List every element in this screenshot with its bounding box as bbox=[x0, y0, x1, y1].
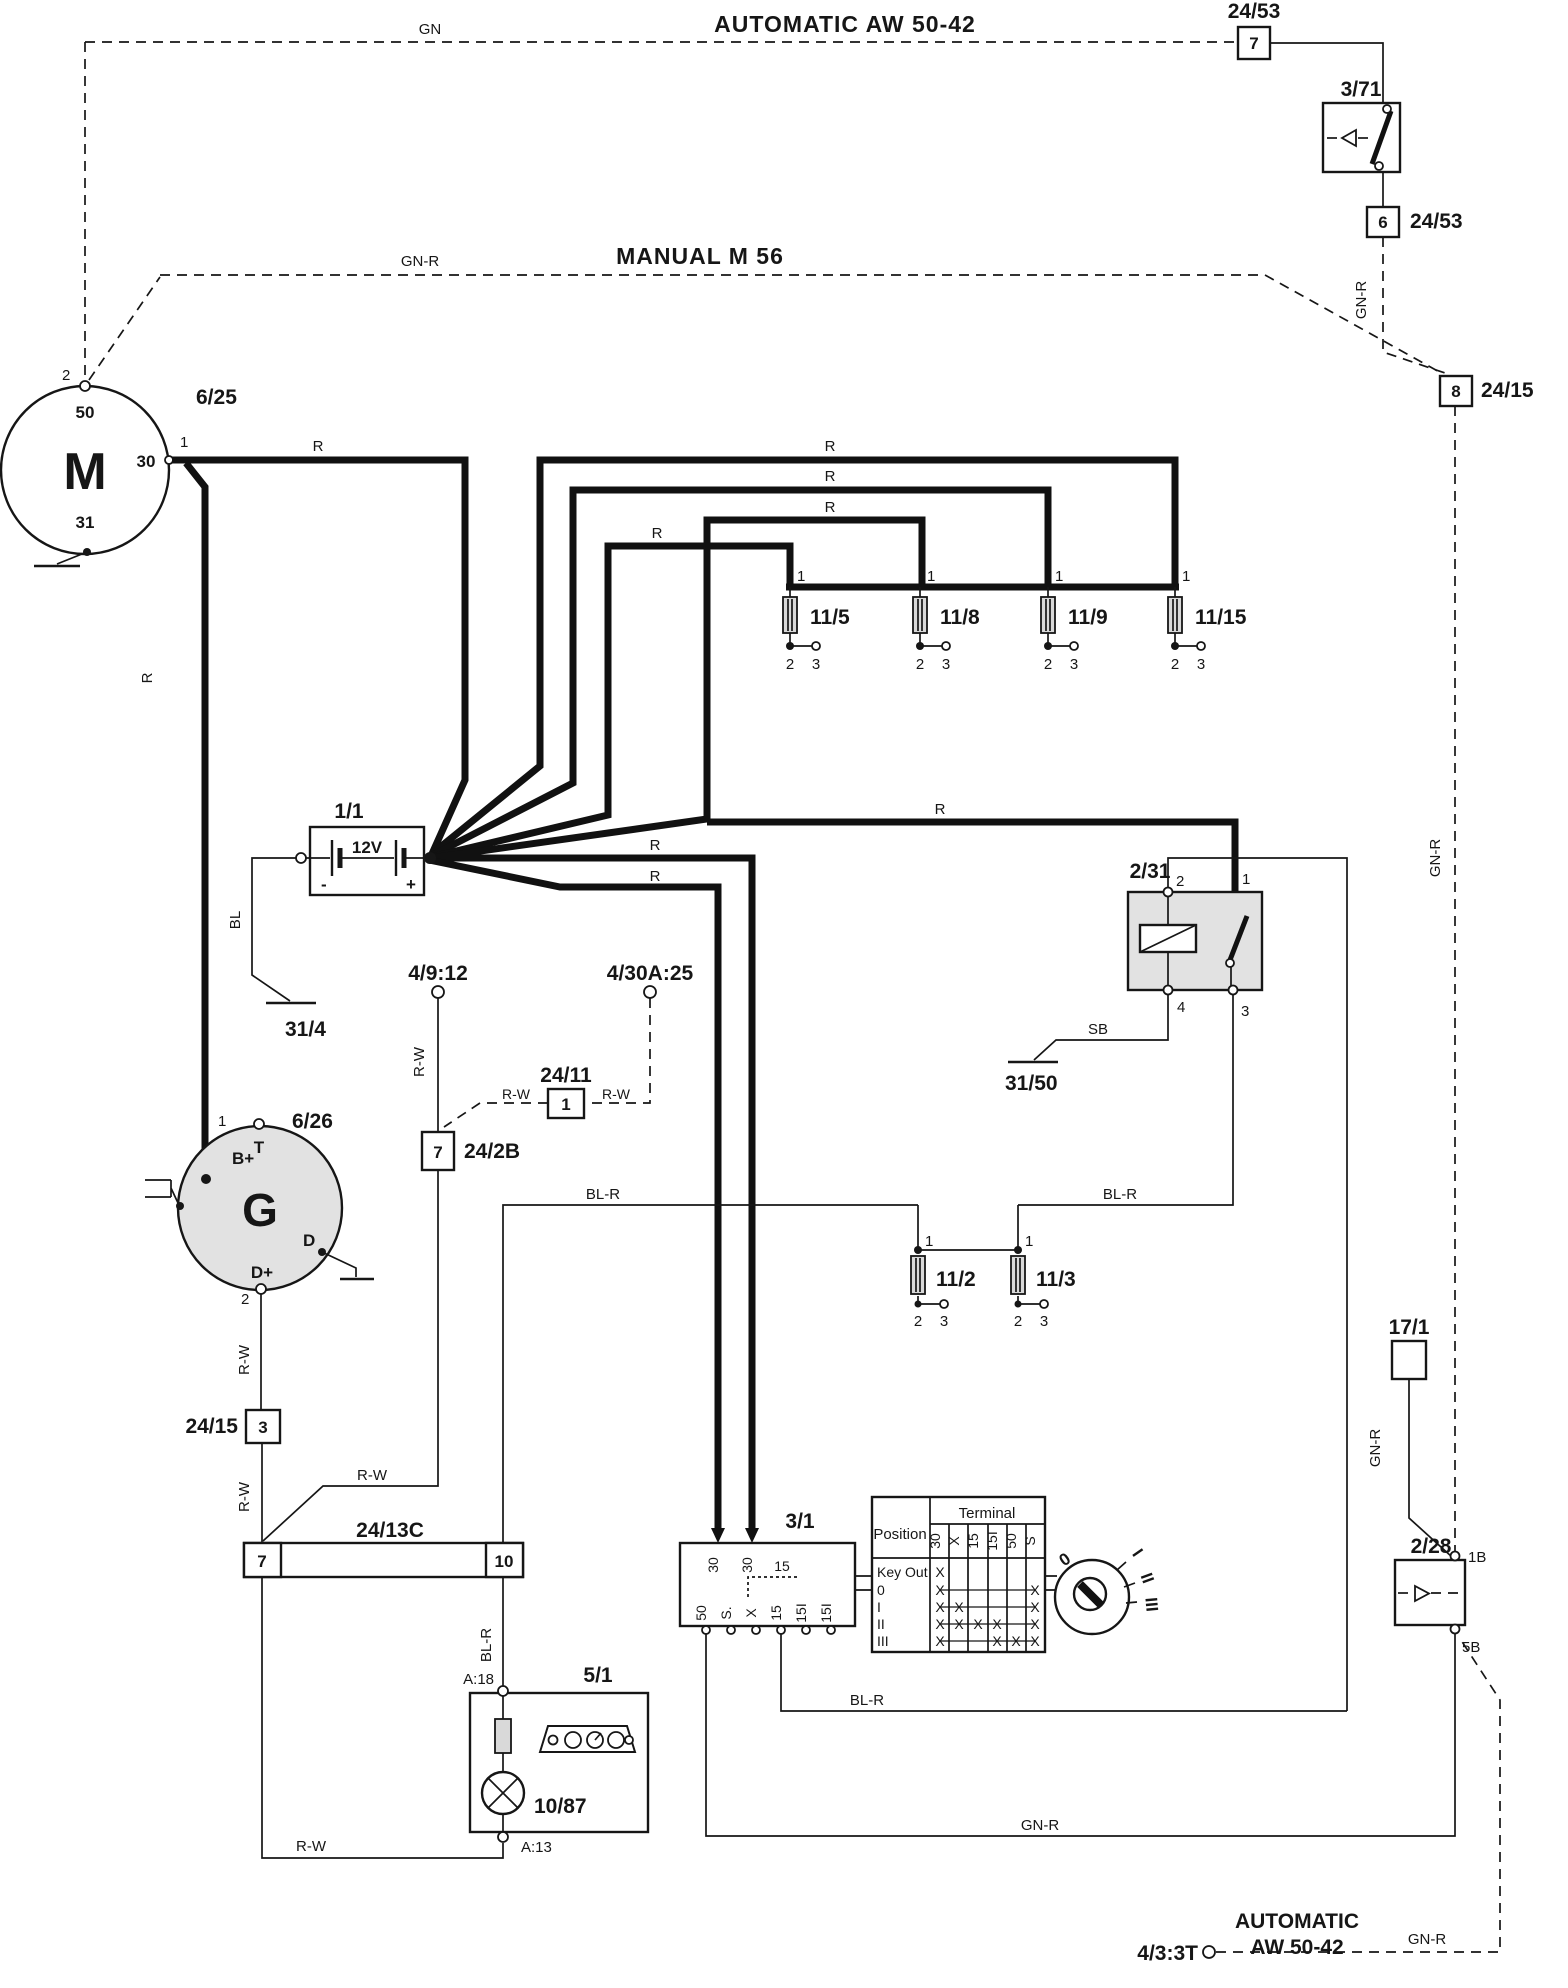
fuse-pin-2: 2 bbox=[786, 656, 794, 673]
wire-label-rw1: R-W bbox=[236, 1344, 253, 1375]
table-mark: X bbox=[973, 1616, 983, 1632]
table-mark: X bbox=[1030, 1582, 1040, 1598]
connector-24-53-id: 24/53 bbox=[1228, 0, 1281, 23]
motor-id: 6/25 bbox=[196, 386, 237, 409]
wire-label-blr4: BL-R bbox=[850, 1692, 884, 1709]
wire-label-r1: R bbox=[313, 438, 324, 455]
connector-24-15-id: 24/15 bbox=[1481, 379, 1534, 402]
conn-24-11-pin1: 1 bbox=[561, 1095, 570, 1114]
fuse-pin-3: 3 bbox=[812, 656, 820, 673]
title-manual: MANUAL M 56 bbox=[616, 243, 784, 269]
gnr-start-wire bbox=[706, 1633, 1455, 1836]
generator-6-26: G 1 B+ T 6/26 D D+ 2 R-W bbox=[145, 1110, 374, 1410]
generator-pin-b: B+ bbox=[232, 1149, 254, 1168]
fuse-pin-2: 2 bbox=[1171, 656, 1179, 673]
motor-symbol: M bbox=[63, 443, 106, 501]
cluster-id: 5/1 bbox=[583, 1664, 613, 1687]
key-pos-iii: III bbox=[1141, 1597, 1161, 1613]
cluster-lamp-id: 10/87 bbox=[534, 1795, 587, 1818]
relay-pin-1: 1 bbox=[1242, 871, 1250, 888]
table-mark: X bbox=[935, 1564, 945, 1580]
wire-label-rw2: R-W bbox=[236, 1481, 253, 1512]
conn-24-13c-pin10: 10 bbox=[495, 1552, 514, 1571]
wire-label-bl: BL bbox=[227, 911, 244, 929]
wire-label-rw5: R-W bbox=[602, 1086, 631, 1102]
battery-ground-wire bbox=[252, 858, 296, 1001]
arrowhead-ign-30a bbox=[711, 1528, 725, 1543]
table-mark: X bbox=[1030, 1599, 1040, 1615]
pin-8-label: 8 bbox=[1451, 382, 1460, 401]
table-mark: X bbox=[935, 1616, 945, 1632]
motor-pin-30: 30 bbox=[137, 452, 156, 471]
wire-label-r3: R bbox=[825, 468, 836, 485]
conn-24-13c-pin7: 7 bbox=[257, 1552, 266, 1571]
cluster-pin-a18: A:18 bbox=[463, 1671, 494, 1688]
ignition-t15: 15 bbox=[768, 1605, 784, 1621]
conn-24-2b-pin7: 7 bbox=[433, 1143, 442, 1162]
wire-label-gn: GN bbox=[419, 21, 442, 38]
table-row-0: 0 bbox=[877, 1582, 885, 1598]
relay-pin-2: 2 bbox=[1176, 873, 1184, 890]
conn-24-2b-id: 24/2B bbox=[464, 1140, 520, 1163]
table-col-50: 50 bbox=[1003, 1533, 1019, 1549]
table-row-ii: II bbox=[877, 1616, 885, 1632]
ignition-ts: S. bbox=[718, 1606, 734, 1619]
conn-4-30a-25-id: 4/30A:25 bbox=[607, 962, 694, 985]
table-col-x: X bbox=[946, 1536, 962, 1546]
diode-2-28-id: 2/28 bbox=[1411, 1535, 1452, 1558]
fuse-pin-3: 3 bbox=[942, 656, 950, 673]
wire-label-gnr-top: GN-R bbox=[1353, 281, 1370, 319]
generator-pin-dplus: D+ bbox=[251, 1263, 273, 1282]
fuse-pin-1: 1 bbox=[1182, 568, 1190, 585]
generator-symbol: G bbox=[242, 1184, 278, 1236]
wiring-diagram: GN AUTOMATIC AW 50-42 GN-R MANUAL M 56 G… bbox=[0, 0, 1568, 1988]
fuse-11-8-id: 11/8 bbox=[940, 606, 980, 629]
wire-label-rw7: R-W bbox=[296, 1838, 327, 1855]
fuse-pin-1: 1 bbox=[925, 1233, 933, 1250]
wire-label-r6: R bbox=[935, 801, 946, 818]
table-mark: X bbox=[992, 1616, 1002, 1632]
wire-label-rw6: R-W bbox=[357, 1467, 388, 1484]
ignition-t50: 50 bbox=[693, 1605, 709, 1621]
wire-label-sb: SB bbox=[1088, 1021, 1108, 1038]
connector-24-53-pin6: 6 24/53 bbox=[1367, 207, 1463, 237]
motor-pin-1: 1 bbox=[180, 434, 188, 451]
inhibitor-switch-3-71: 3/71 bbox=[1323, 78, 1400, 172]
table-mark: X bbox=[1011, 1633, 1021, 1649]
battery-1-1: 1/1 12V - + BL 31/4 bbox=[227, 800, 428, 1041]
generator-pin-t: T bbox=[254, 1138, 265, 1157]
diode-2-28: 2/28 1B 5B bbox=[1395, 1535, 1486, 1656]
conn-24-13c-id: 24/13C bbox=[356, 1519, 424, 1542]
ignition-t15i-b: 15I bbox=[818, 1603, 834, 1622]
ignition-position-table: Position Terminal 30 X 15 15I 50 S Key O… bbox=[872, 1497, 1045, 1652]
diode-pin-1b: 1B bbox=[1468, 1549, 1486, 1566]
fuse-pin-1: 1 bbox=[927, 568, 935, 585]
fuse-11-2: 1 2 3 11/2 bbox=[911, 1205, 1018, 1330]
fuse-11-9-id: 11/9 bbox=[1068, 606, 1108, 629]
table-mark: X bbox=[1030, 1616, 1040, 1632]
conn-24-11-id: 24/11 bbox=[540, 1064, 592, 1087]
table-col-15: 15 bbox=[965, 1533, 981, 1549]
ignition-t30b: 30 bbox=[739, 1557, 755, 1573]
connector-24-15-pin8: 8 24/15 bbox=[1440, 376, 1534, 406]
title-automatic-bottom-2: AW 50-42 bbox=[1250, 1936, 1343, 1959]
wire-label-blr3: BL-R bbox=[478, 1628, 495, 1662]
wire-label-blr2: BL-R bbox=[586, 1186, 620, 1203]
table-row-iii: III bbox=[877, 1633, 889, 1649]
inhibitor-switch-id: 3/71 bbox=[1341, 78, 1382, 101]
wire-label-gnr-manual: GN-R bbox=[401, 253, 439, 270]
key-pos-ii: II bbox=[1137, 1570, 1158, 1585]
table-mark: X bbox=[954, 1616, 964, 1632]
ignition-t15-internal: 15 bbox=[774, 1558, 790, 1574]
fuse-pin-2: 2 bbox=[1014, 1313, 1022, 1330]
connector-24-53-pin7: 7 24/53 bbox=[1228, 0, 1281, 59]
fuse-pin-3: 3 bbox=[940, 1313, 948, 1330]
relay-2-31-id: 2/31 bbox=[1130, 860, 1171, 883]
suppressor-icon bbox=[145, 1180, 178, 1203]
fuse-pin-1: 1 bbox=[1055, 568, 1063, 585]
fuse-11-3: 1 2 3 11/3 bbox=[1011, 1205, 1076, 1330]
title-automatic-top: AUTOMATIC AW 50-42 bbox=[714, 11, 976, 37]
title-automatic-bottom-1: AUTOMATIC bbox=[1235, 1910, 1359, 1933]
table-col-s: S bbox=[1022, 1536, 1038, 1545]
wire-label-gnr-bottom-right: GN-R bbox=[1408, 1931, 1446, 1948]
conn-4-3-3t-id: 4/3:3T bbox=[1137, 1942, 1198, 1965]
relay-pin-4: 4 bbox=[1177, 999, 1185, 1016]
fuse-pin-1: 1 bbox=[797, 568, 805, 585]
generator-pin-2: 2 bbox=[241, 1291, 249, 1308]
wire-label-gnr-right: GN-R bbox=[1427, 839, 1444, 877]
battery-voltage: 12V bbox=[352, 838, 383, 857]
fuse-pin-2: 2 bbox=[916, 656, 924, 673]
table-col-15i: 15I bbox=[984, 1531, 1000, 1550]
relay-pin-3: 3 bbox=[1241, 1003, 1249, 1020]
wire-label-r9: R bbox=[139, 672, 156, 683]
wire-label-rw3: R-W bbox=[411, 1046, 428, 1077]
blr-to-connector-wire bbox=[503, 1205, 918, 1543]
fuse-pin-3: 3 bbox=[1070, 656, 1078, 673]
table-mark: X bbox=[935, 1582, 945, 1598]
wire-label-rw4: R-W bbox=[502, 1086, 531, 1102]
battery-id: 1/1 bbox=[334, 800, 364, 823]
wire-label-r8: R bbox=[650, 868, 661, 885]
module-17-1-id: 17/1 bbox=[1389, 1316, 1430, 1339]
ignition-key-icon: 0 I II III bbox=[1055, 1545, 1162, 1634]
motor-pin-50: 50 bbox=[76, 403, 95, 422]
conn-4-9-12-id: 4/9:12 bbox=[408, 962, 468, 985]
pin-7-label: 7 bbox=[1249, 34, 1258, 53]
ignition-t15i-a: 15I bbox=[793, 1603, 809, 1622]
battery-minus: - bbox=[321, 875, 327, 894]
fuse-pin-2: 2 bbox=[1044, 656, 1052, 673]
table-header-terminal: Terminal bbox=[959, 1505, 1016, 1522]
connector-24-15-id-2: 24/15 bbox=[185, 1415, 238, 1438]
fuse-pin-2: 2 bbox=[914, 1313, 922, 1330]
generator-pin-d: D bbox=[303, 1231, 315, 1250]
fuse-pin-3: 3 bbox=[1197, 656, 1205, 673]
wire-label-r2: R bbox=[825, 438, 836, 455]
ignition-id: 3/1 bbox=[785, 1510, 815, 1533]
fuse-pin-3: 3 bbox=[1040, 1313, 1048, 1330]
table-row-keyout: Key Out bbox=[877, 1564, 928, 1580]
wire-label-r4: R bbox=[825, 499, 836, 516]
fuse-11-5-id: 11/5 bbox=[810, 606, 850, 629]
cluster-pin-a13: A:13 bbox=[521, 1839, 552, 1856]
table-mark: X bbox=[992, 1633, 1002, 1649]
table-mark: X bbox=[935, 1599, 945, 1615]
fuse-11-3-id: 11/3 bbox=[1036, 1268, 1076, 1291]
fuse-11-15: 1 2 3 11/15 bbox=[1168, 568, 1247, 673]
wire-label-gnr-17-1: GN-R bbox=[1367, 1429, 1384, 1467]
instrument-cluster-5-1: 5/1 A:18 10/87 A:13 bbox=[463, 1664, 648, 1856]
wire-label-gnr-bottom: GN-R bbox=[1021, 1817, 1059, 1834]
connector-24-53-id-2: 24/53 bbox=[1410, 210, 1463, 233]
automatic-bottom-circuit: 4/3:3T AUTOMATIC AW 50-42 GN-R bbox=[1137, 1637, 1500, 1965]
diode-pin-5b: 5B bbox=[1462, 1639, 1480, 1656]
wire-label-r5: R bbox=[652, 525, 663, 542]
table-col-30: 30 bbox=[927, 1533, 943, 1549]
key-pos-i: I bbox=[1128, 1545, 1146, 1560]
fuse-11-15-id: 11/15 bbox=[1195, 606, 1247, 629]
table-mark: X bbox=[1030, 1633, 1040, 1649]
pin-3-label: 3 bbox=[258, 1418, 267, 1437]
motor-pin-31: 31 bbox=[76, 513, 95, 532]
battery-r-wiring: R R R R R R R R R bbox=[139, 438, 1242, 1543]
module-17-1: 17/1 GN-R bbox=[1367, 1316, 1452, 1557]
fuse-11-2-id: 11/2 bbox=[936, 1268, 976, 1291]
generator-pin-1: 1 bbox=[218, 1113, 226, 1130]
connector-24-15-pin3: 3 24/15 R-W bbox=[185, 1410, 280, 1543]
relay-output-wire bbox=[1018, 994, 1233, 1205]
automatic-gn-circuit: GN AUTOMATIC AW 50-42 GN-R MANUAL M 56 G… bbox=[85, 11, 1455, 1552]
fuse-pin-1: 1 bbox=[1025, 1233, 1033, 1250]
table-mark: X bbox=[954, 1599, 964, 1615]
ignition-t30a: 30 bbox=[705, 1557, 721, 1573]
ignition-tx: X bbox=[743, 1608, 759, 1618]
ground-31-4-id: 31/4 bbox=[285, 1018, 326, 1041]
motor-pin-2: 2 bbox=[62, 367, 70, 384]
table-header-position: Position bbox=[873, 1526, 926, 1543]
table-mark: X bbox=[935, 1633, 945, 1649]
arrowhead-ign-30b bbox=[745, 1528, 759, 1543]
table-row-i: I bbox=[877, 1599, 881, 1615]
generator-id: 6/26 bbox=[292, 1110, 333, 1133]
battery-plus: + bbox=[406, 875, 416, 894]
ground-31-50-id: 31/50 bbox=[1005, 1072, 1058, 1095]
wire-label-blr1: BL-R bbox=[1103, 1186, 1137, 1203]
wiring-diagram-canvas: GN AUTOMATIC AW 50-42 GN-R MANUAL M 56 G… bbox=[0, 0, 1568, 1988]
wire-label-r7: R bbox=[650, 837, 661, 854]
pin-6-label: 6 bbox=[1378, 213, 1387, 232]
